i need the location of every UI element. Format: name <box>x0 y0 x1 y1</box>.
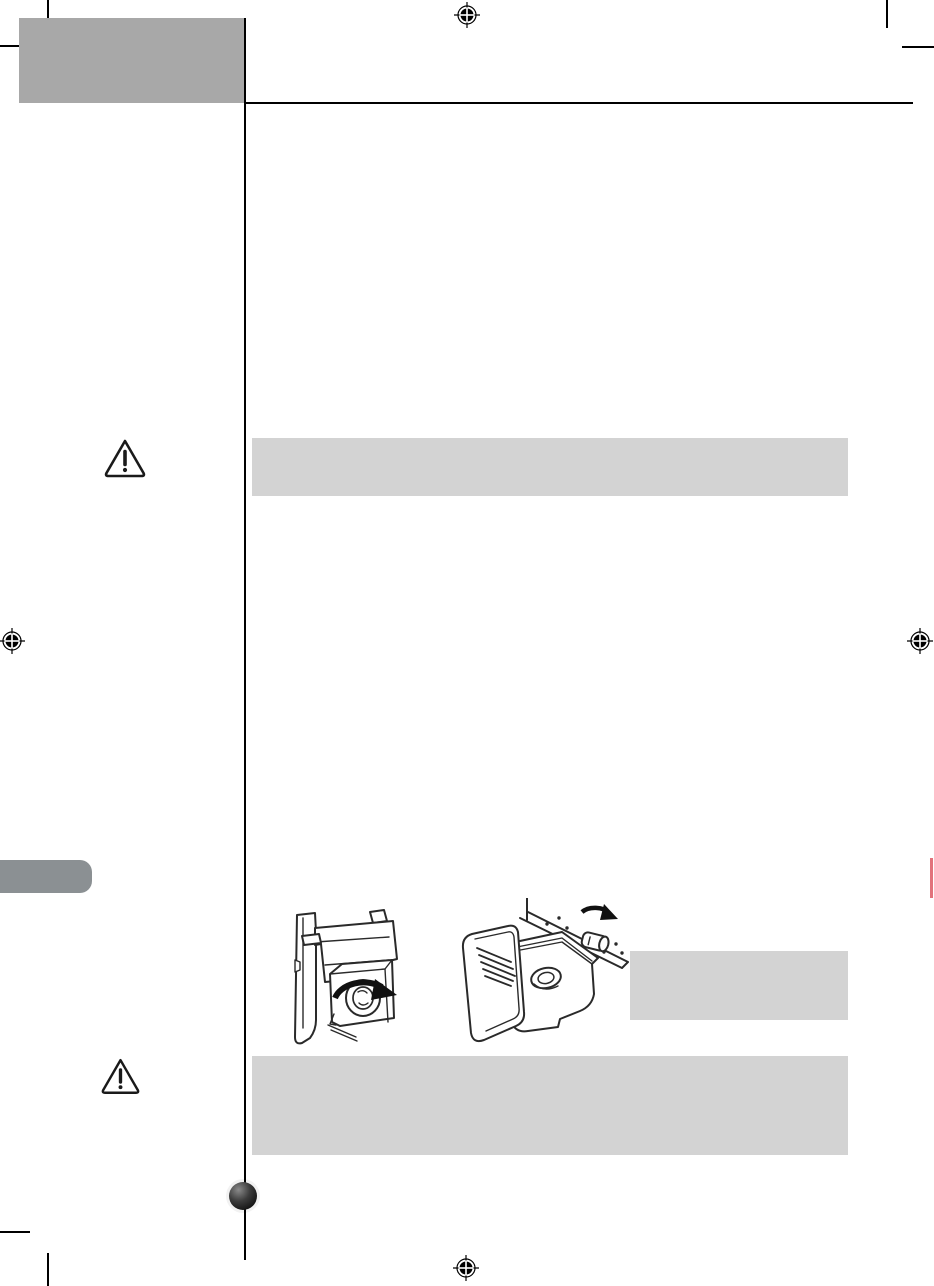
manual-page <box>0 0 934 1286</box>
trim-mark-bottom-left-vertical <box>47 1253 49 1286</box>
caution-note-box-upper <box>252 438 848 496</box>
warning-triangle-icon <box>103 438 147 478</box>
header-rule <box>245 102 913 104</box>
ice-maker-illustration <box>272 902 407 1048</box>
column-divider-line <box>244 18 246 1260</box>
ice-bin-illustration <box>446 898 646 1048</box>
page-number-bullet <box>229 1182 257 1210</box>
trim-mark-top-right-vertical <box>886 0 888 28</box>
illustration-note-box <box>630 951 848 1020</box>
warning-triangle-icon <box>100 1057 141 1095</box>
registration-mark-icon <box>454 2 480 28</box>
registration-mark-icon <box>907 628 933 654</box>
trim-mark-bottom-left-horizontal <box>0 1231 30 1233</box>
trim-mark-top-right-horizontal <box>902 46 934 48</box>
red-edge-mark <box>930 858 933 898</box>
header-title-block <box>19 18 245 103</box>
section-tab <box>0 860 92 893</box>
registration-mark-icon <box>0 628 25 654</box>
caution-note-box-lower <box>252 1056 848 1155</box>
registration-mark-icon <box>453 1255 479 1281</box>
